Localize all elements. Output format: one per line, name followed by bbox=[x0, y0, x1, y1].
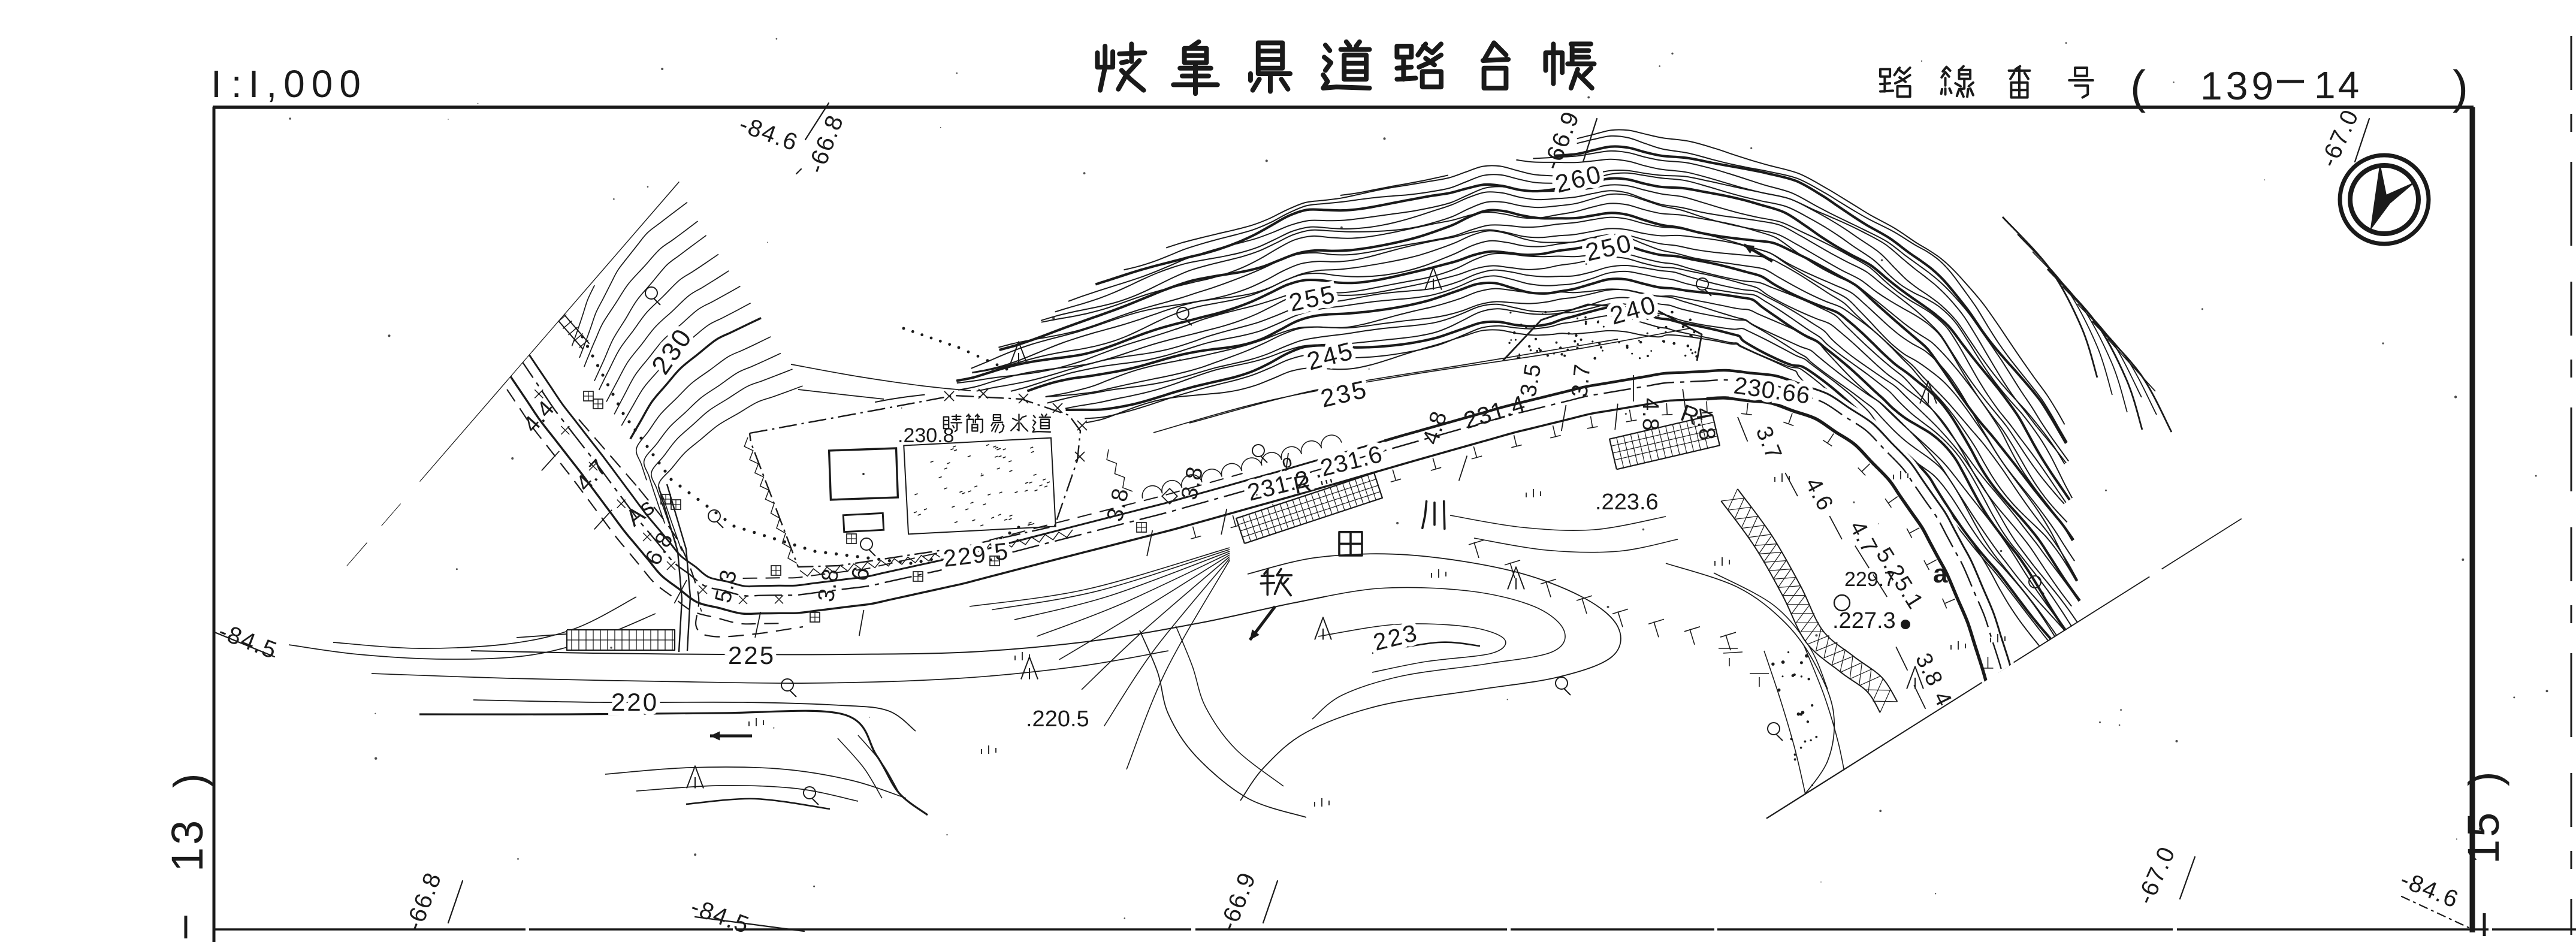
svg-text:.223.6: .223.6 bbox=[1595, 490, 1659, 515]
svg-text:13: 13 bbox=[162, 818, 212, 872]
svg-text:): ) bbox=[165, 773, 215, 788]
svg-text:139: 139 bbox=[2200, 64, 2277, 108]
svg-text:3.7: 3.7 bbox=[1567, 363, 1596, 398]
svg-text:14: 14 bbox=[2314, 64, 2361, 107]
svg-text:.220.5: .220.5 bbox=[1026, 707, 1089, 732]
svg-text:.227.3: .227.3 bbox=[1832, 608, 1896, 633]
svg-text:225: 225 bbox=[728, 641, 775, 669]
svg-text:.230.8: .230.8 bbox=[898, 424, 955, 447]
svg-text:15: 15 bbox=[2459, 810, 2508, 864]
svg-text:220: 220 bbox=[611, 688, 659, 716]
svg-text:4.8: 4.8 bbox=[1638, 398, 1663, 431]
svg-text:I:I,000: I:I,000 bbox=[211, 62, 367, 105]
svg-text:): ) bbox=[2453, 61, 2468, 113]
svg-text:): ) bbox=[2460, 771, 2509, 786]
svg-text:a: a bbox=[1933, 559, 1948, 588]
svg-text:229.7: 229.7 bbox=[1844, 568, 1895, 591]
svg-text:(: ( bbox=[2130, 61, 2146, 113]
